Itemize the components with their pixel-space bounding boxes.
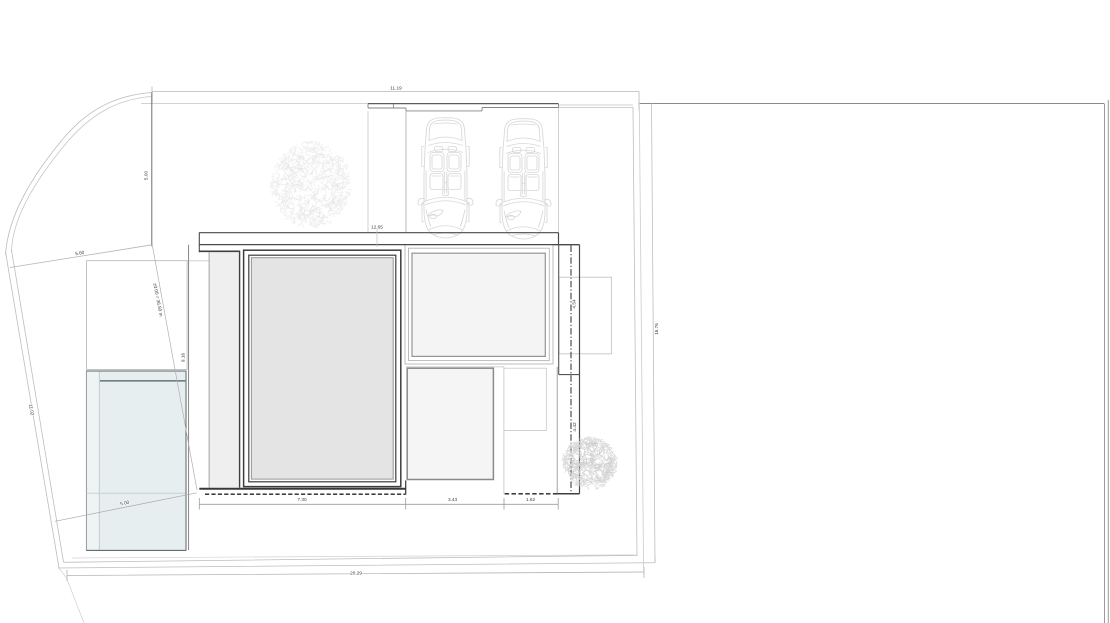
svg-text:5.60: 5.60 <box>75 250 85 256</box>
svg-text:11.02: 11.02 <box>28 404 35 416</box>
svg-text:20.29: 20.29 <box>350 571 362 576</box>
svg-text:7.30: 7.30 <box>297 497 307 502</box>
svg-text:9.16: 9.16 <box>181 353 186 363</box>
svg-text:5.00: 5.00 <box>144 171 149 181</box>
svg-text:4.54: 4.54 <box>571 299 576 309</box>
svg-text:3.43: 3.43 <box>448 497 458 502</box>
svg-text:1.62: 1.62 <box>526 497 536 502</box>
svg-text:11.19: 11.19 <box>390 86 402 91</box>
svg-text:4.42: 4.42 <box>572 422 577 432</box>
svg-text:12.65: 12.65 <box>371 225 383 230</box>
svg-text:16.76: 16.76 <box>654 323 659 335</box>
